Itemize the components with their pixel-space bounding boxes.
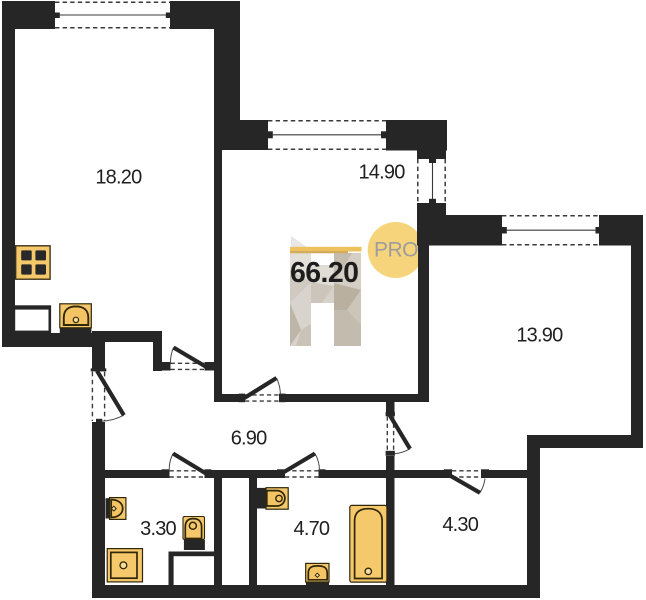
svg-text:14.90: 14.90 — [358, 162, 405, 184]
svg-text:6.90: 6.90 — [231, 428, 267, 450]
svg-text:4.70: 4.70 — [294, 518, 330, 540]
svg-text:18.20: 18.20 — [95, 167, 142, 189]
svg-text:66.20: 66.20 — [290, 257, 358, 289]
svg-text:4.30: 4.30 — [442, 514, 478, 536]
svg-text:3.30: 3.30 — [140, 518, 176, 540]
svg-text:13.90: 13.90 — [516, 324, 563, 346]
svg-text:PRO: PRO — [374, 239, 418, 262]
